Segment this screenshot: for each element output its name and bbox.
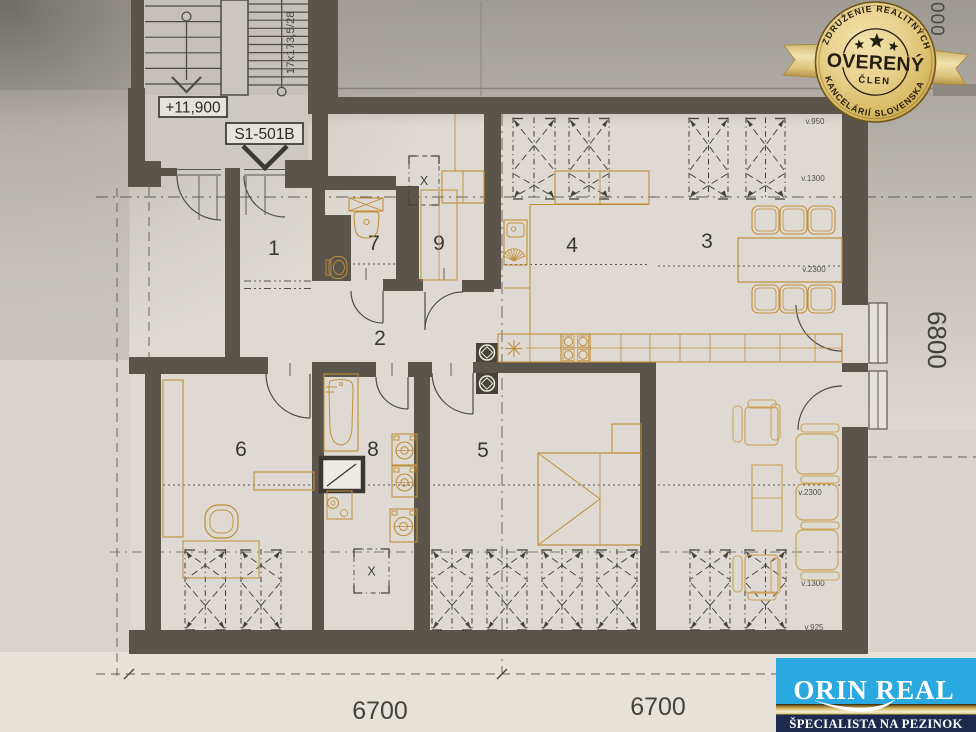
svg-text:17x173,5/28: 17x173,5/28 <box>285 11 297 74</box>
svg-text:v.2300: v.2300 <box>802 265 826 274</box>
svg-text:4: 4 <box>566 234 578 257</box>
svg-text:2: 2 <box>374 327 386 350</box>
svg-text:ORIN REAL: ORIN REAL <box>793 675 954 705</box>
svg-text:X: X <box>420 174 429 188</box>
svg-text:v.925: v.925 <box>805 623 825 632</box>
svg-text:6700: 6700 <box>630 693 686 721</box>
svg-text:1: 1 <box>268 237 280 260</box>
svg-text:5: 5 <box>477 439 489 462</box>
svg-text:ČLEN: ČLEN <box>858 74 891 88</box>
svg-text:v.950: v.950 <box>806 117 826 126</box>
svg-text:v.1300: v.1300 <box>801 174 825 183</box>
svg-text:S1-501B: S1-501B <box>234 126 294 143</box>
svg-text:ŠPECIALISTA NA PEZINOK: ŠPECIALISTA NA PEZINOK <box>789 717 962 731</box>
svg-text:+11,900: +11,900 <box>165 100 221 117</box>
svg-text:6800: 6800 <box>922 311 952 369</box>
svg-text:000: 000 <box>926 2 947 37</box>
svg-text:X: X <box>367 565 376 579</box>
svg-text:6: 6 <box>235 438 247 461</box>
svg-text:8: 8 <box>367 438 379 461</box>
svg-text:3: 3 <box>701 230 713 253</box>
svg-text:6700: 6700 <box>352 697 408 725</box>
svg-text:v.2300: v.2300 <box>798 488 822 497</box>
